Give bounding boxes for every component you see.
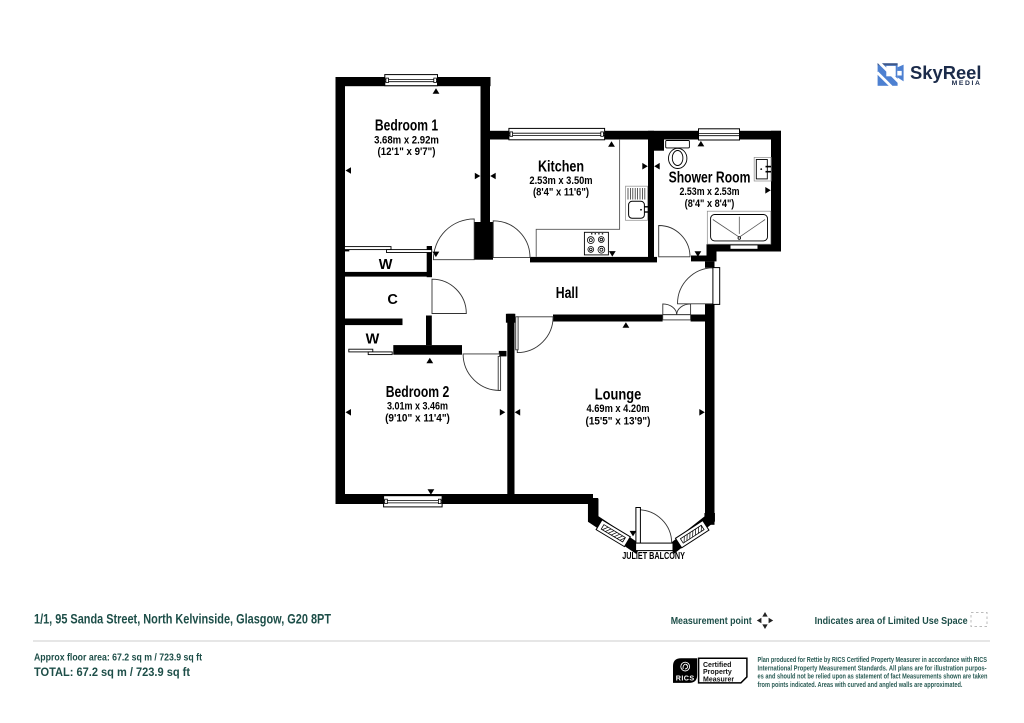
svg-text:(8'4" x 11'6"): (8'4" x 11'6") [533,187,589,199]
svg-text:TOTAL: 67.2 sq m / 723.9 sq f: TOTAL: 67.2 sq m / 723.9 sq ft [34,665,190,679]
svg-text:Certified: Certified [703,662,731,669]
svg-text:International Property Measur: International Property Measurement Stand… [758,665,988,672]
svg-text:2.53m x 2.53m: 2.53m x 2.53m [680,186,740,198]
svg-text:1/1, 95 Sanda Street, North Ke: 1/1, 95 Sanda Street, North Kelvinside, … [34,612,332,627]
svg-text:Measurement point: Measurement point [671,615,752,627]
svg-text:3.68m x 2.92m: 3.68m x 2.92m [374,135,439,147]
svg-text:C: C [387,292,398,308]
svg-text:W: W [379,257,393,273]
svg-text:MEDIA: MEDIA [952,80,982,87]
svg-text:Property: Property [703,669,732,676]
svg-text:W: W [366,332,380,348]
svg-text:Indicates area of Limited Use: Indicates area of Limited Use Space [815,615,968,627]
svg-text:Bedroom 1: Bedroom 1 [375,118,439,135]
svg-text:JULIET BALCONY: JULIET BALCONY [622,551,685,562]
svg-text:Kitchen: Kitchen [538,159,584,176]
svg-text:(12'1" x 9'7"): (12'1" x 9'7") [378,146,436,158]
svg-text:Shower Room: Shower Room [669,170,751,187]
svg-text:2.53m x 3.50m: 2.53m x 3.50m [529,175,592,187]
svg-text:Plan produced for Rettie by RI: Plan produced for Rettie by RICS Certifi… [758,657,988,664]
svg-text:(15'5" x 13'9"): (15'5" x 13'9") [586,416,651,428]
svg-text:RICS: RICS [676,674,695,683]
svg-text:(9'10" x 11'4"): (9'10" x 11'4") [385,413,450,425]
svg-text:Bedroom 2: Bedroom 2 [386,384,450,401]
svg-text:Hall: Hall [556,285,579,302]
svg-text:4.69m x 4.20m: 4.69m x 4.20m [587,403,650,415]
svg-text:from points indicated. Areas w: from points indicated. Areas with curved… [758,682,963,689]
svg-text:es and should not be relied up: es and should not be relied upon as stat… [758,674,988,681]
svg-text:(8'4" x 8'4"): (8'4" x 8'4") [685,198,735,210]
svg-text:Measurer: Measurer [703,676,734,683]
svg-text:3.01m x 3.46m: 3.01m x 3.46m [387,401,448,413]
svg-text:Approx floor area: 67.2 sq m /: Approx floor area: 67.2 sq m / 723.9 sq … [34,653,203,664]
svg-text:Lounge: Lounge [595,387,642,404]
